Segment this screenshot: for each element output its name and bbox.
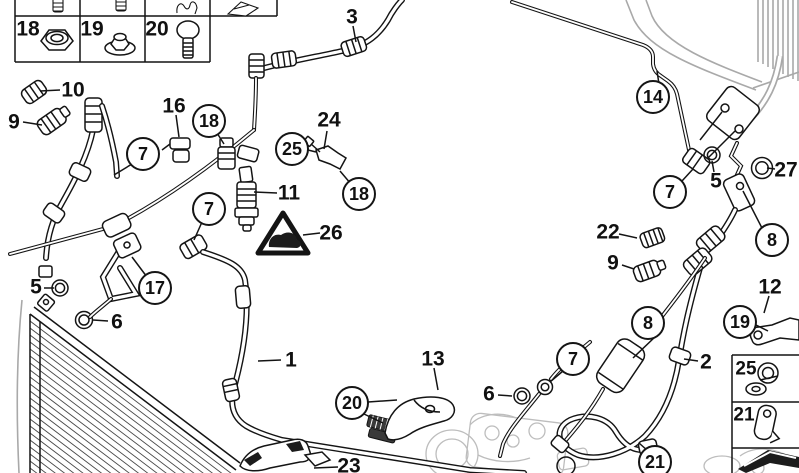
table-label-20[interactable]: 20	[145, 19, 168, 40]
callout-circled-19[interactable]: 19	[723, 305, 757, 339]
hex-nut-18-art	[41, 30, 73, 50]
callout-26[interactable]: 26	[319, 223, 342, 244]
box-label-21[interactable]: 21	[733, 406, 754, 425]
condenser-art	[17, 294, 240, 473]
callout-5-right[interactable]: 5	[710, 171, 722, 192]
callout-22[interactable]: 22	[596, 222, 619, 243]
callout-27[interactable]: 27	[774, 160, 797, 181]
flange-nut-19-art	[105, 34, 135, 56]
callout-circled-18-a[interactable]: 18	[192, 104, 226, 138]
callout-24[interactable]: 24	[317, 110, 340, 131]
callout-5-left[interactable]: 5	[30, 277, 42, 298]
callout-circled-20[interactable]: 20	[335, 386, 369, 420]
hex-bolt-20-art	[177, 21, 199, 58]
loop-pipe-art	[90, 232, 142, 317]
diagram-art	[0, 0, 799, 473]
callout-12[interactable]: 12	[758, 277, 781, 298]
callout-2[interactable]: 2	[700, 352, 712, 373]
callout-6-left[interactable]: 6	[111, 312, 123, 333]
hose-1-art	[179, 234, 524, 473]
callout-10[interactable]: 10	[61, 80, 84, 101]
valve-11-art	[235, 166, 258, 231]
callout-circled-8-b[interactable]: 8	[631, 306, 665, 340]
callout-circled-7-d[interactable]: 7	[556, 342, 590, 376]
callout-circled-17[interactable]: 17	[138, 271, 172, 305]
callout-circled-21[interactable]: 21	[638, 445, 672, 473]
warning-triangle-art	[258, 213, 308, 253]
callout-circled-18-b[interactable]: 18	[342, 177, 376, 211]
callout-circled-8-a[interactable]: 8	[755, 223, 789, 257]
callout-circled-25[interactable]: 25	[275, 132, 309, 166]
callout-13[interactable]: 13	[421, 349, 444, 370]
callout-23[interactable]: 23	[337, 456, 360, 473]
callout-9-right[interactable]: 9	[607, 253, 619, 274]
parts-diagram: 18 19 20 25 21 3 10 9 16 24 11 26 5 6 1 …	[0, 0, 799, 473]
callout-circled-7-a[interactable]: 7	[126, 137, 160, 171]
callout-16[interactable]: 16	[162, 96, 185, 117]
callout-6-center[interactable]: 6	[483, 384, 495, 405]
bracket-13-art	[385, 397, 454, 440]
clip-16-art	[162, 138, 190, 162]
callout-circled-7-c[interactable]: 7	[653, 175, 687, 209]
box-label-25[interactable]: 25	[735, 360, 756, 379]
callout-circled-14[interactable]: 14	[636, 80, 670, 114]
callout-9-left[interactable]: 9	[8, 112, 20, 133]
bracket-12-art	[750, 318, 799, 345]
table-label-19[interactable]: 19	[80, 19, 103, 40]
pipe-14-art	[512, 2, 711, 175]
callout-circled-7-b[interactable]: 7	[192, 192, 226, 226]
callout-3[interactable]: 3	[346, 7, 358, 28]
callout-1[interactable]: 1	[285, 350, 297, 371]
expansion-valve-art	[700, 84, 762, 212]
table-label-18[interactable]: 18	[16, 19, 39, 40]
callout-11[interactable]: 11	[278, 183, 300, 204]
